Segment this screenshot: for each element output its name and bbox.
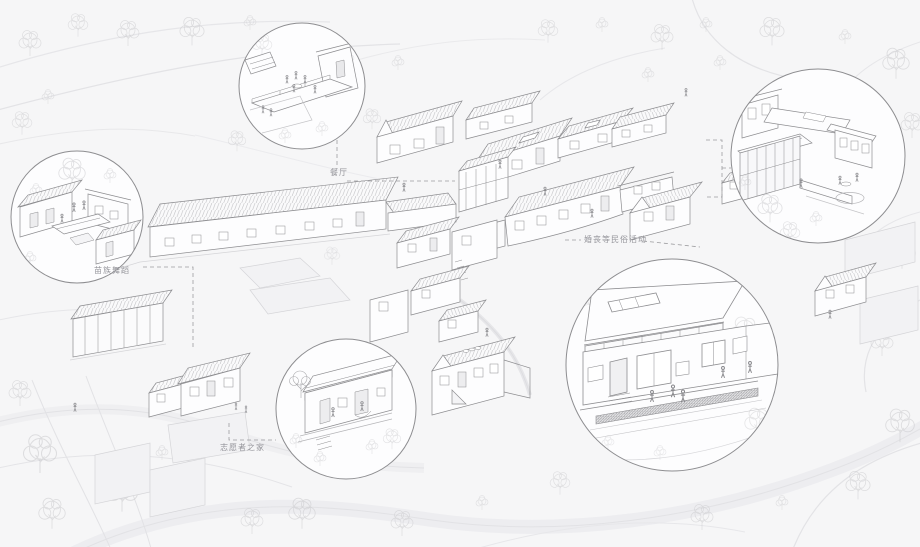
label-dining-hall: 餐厅 [330,168,348,178]
masterplan-canvas: 餐厅 苗族舞蹈 志愿者之家 婚丧等民俗活动 [0,0,920,547]
label-folk-activities: 婚丧等民俗活动 [584,235,647,245]
callout-dance-courtyard [11,151,143,283]
building-volunteer-home [149,353,250,417]
building-glazed-pavilion [71,290,172,357]
label-miao-dance: 苗族舞蹈 [94,266,130,276]
callout-main-building [566,259,778,471]
callout-volunteer-home [276,339,416,479]
callout-community-courtyard [731,69,905,245]
callout-dining-terrace [239,23,365,149]
label-volunteer-home: 志愿者之家 [220,443,265,453]
building-courtyard-house [432,337,530,415]
masterplan-drawing [0,0,920,547]
